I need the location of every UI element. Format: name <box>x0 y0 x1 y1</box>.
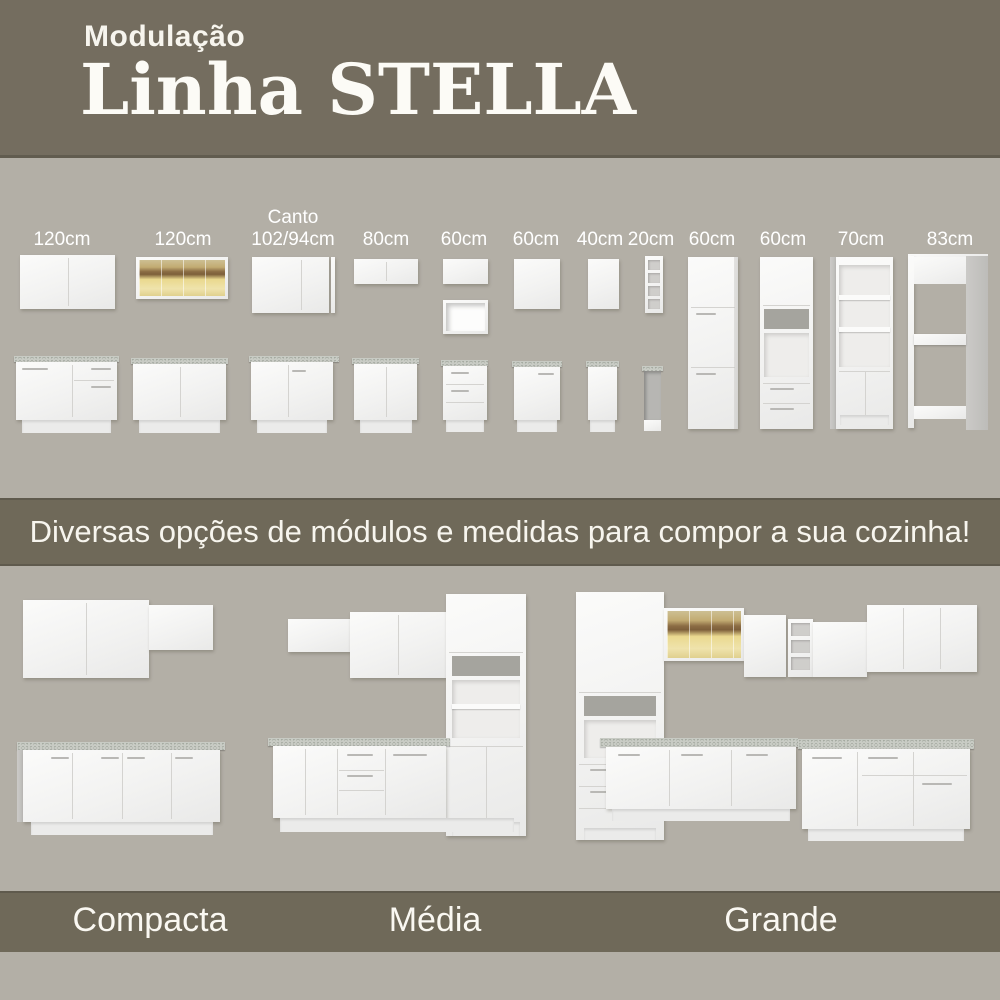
kitchen-label-compacta: Compacta <box>73 891 228 952</box>
base-cabinet-120-a <box>16 362 117 420</box>
module-label-60-c: 60cm <box>689 229 735 251</box>
module-label-60-d: 60cm <box>760 229 806 251</box>
wall-cabinet-120-a <box>20 255 115 309</box>
wall-cabinet-60-low <box>443 259 488 284</box>
corner-base-cabinet <box>251 362 333 420</box>
module-label-20: 20cm <box>628 229 674 251</box>
wall-cabinet-60-door <box>514 259 560 309</box>
base-drawer-unit-60 <box>443 366 487 420</box>
module-label-83: 83cm <box>927 229 973 251</box>
open-shelf-unit-20 <box>645 256 663 313</box>
promo-page: Modulação Linha STELLA 120cm 120cm Canto… <box>0 0 1000 1000</box>
wall-cabinet-80 <box>354 259 418 284</box>
module-label-120-b: 120cm <box>154 229 211 251</box>
glass-wall-cabinet-120 <box>136 257 228 299</box>
plinth-80 <box>360 420 412 433</box>
kitchen-label-grande: Grande <box>724 891 837 952</box>
kitchen-compacta-illustration <box>15 592 237 854</box>
fridge-surround-cabinet-83 <box>908 254 988 430</box>
module-label-60-b: 60cm <box>513 229 559 251</box>
base-cabinet-80 <box>354 364 417 420</box>
module-label-80: 80cm <box>363 229 409 251</box>
header: Modulação Linha STELLA <box>0 0 1000 158</box>
module-label-70: 70cm <box>838 229 884 251</box>
plinth-120-a <box>22 420 111 433</box>
tall-pantry-cabinet-60 <box>688 257 738 429</box>
oven-tower-cabinet-60 <box>760 257 813 429</box>
corner-wall-cabinet <box>252 257 329 313</box>
corner-wall-return-panel <box>331 257 335 313</box>
kitchen-media-illustration <box>268 588 534 850</box>
tall-shelf-cabinet-70 <box>830 257 893 429</box>
module-label-60-a: 60cm <box>441 229 487 251</box>
open-base-rack-20 <box>644 371 661 420</box>
module-label-canto: Canto 102/94cm <box>251 207 334 251</box>
plinth-120-b <box>139 420 220 433</box>
plinth-60-drawers <box>446 420 484 432</box>
module-label-canto-bottom: 102/94cm <box>251 229 334 251</box>
base-cabinet-120-b <box>133 364 226 420</box>
module-label-canto-top: Canto <box>251 207 334 229</box>
wall-cabinet-40 <box>588 259 619 309</box>
module-label-40: 40cm <box>577 229 623 251</box>
kitchen-grande-illustration <box>558 578 990 865</box>
banner-text: Diversas opções de módulos e medidas par… <box>30 514 971 550</box>
kitchen-label-media: Média <box>389 891 482 952</box>
base-cabinet-60-door <box>514 367 560 420</box>
open-niche-60 <box>443 300 488 334</box>
corner-plinth <box>257 420 327 433</box>
plinth-40 <box>590 420 615 432</box>
base-cabinet-40 <box>588 367 617 420</box>
module-label-120-a: 120cm <box>33 229 90 251</box>
plinth-60-door <box>517 420 557 432</box>
plinth-20 <box>644 420 661 431</box>
header-title: Linha STELLA <box>80 48 636 131</box>
banner: Diversas opções de módulos e medidas par… <box>0 498 1000 566</box>
